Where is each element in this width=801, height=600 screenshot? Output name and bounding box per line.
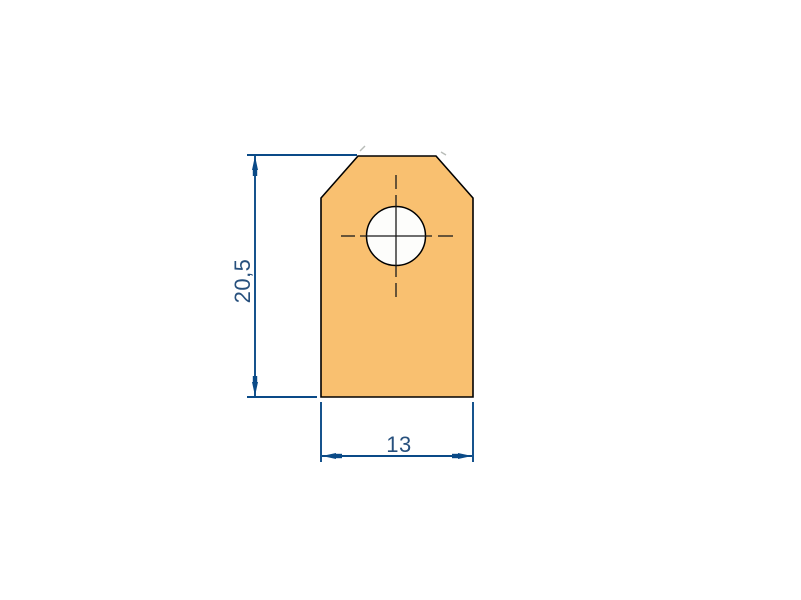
height-arrow-down-tail: [253, 376, 257, 382]
width-arrow-left-icon: [322, 453, 336, 459]
artifact-tick-left: [360, 146, 365, 151]
height-dimension-label: 20,5: [230, 259, 255, 304]
height-arrow-up-icon: [252, 156, 258, 170]
width-arrow-right-tail: [452, 454, 458, 458]
width-dimension: 13: [321, 402, 473, 462]
profile-shape: [321, 156, 473, 397]
technical-drawing-canvas: 20,5 13: [0, 0, 801, 600]
artifact-tick-right: [441, 152, 446, 155]
width-dimension-label: 13: [386, 432, 411, 457]
technical-drawing-page: 20,5 13: [0, 0, 801, 600]
corner-artifact-ticks: [360, 146, 446, 155]
width-arrow-left-tail: [336, 454, 342, 458]
height-arrow-down-icon: [252, 382, 258, 396]
height-arrow-up-tail: [253, 170, 257, 176]
width-arrow-right-icon: [458, 453, 472, 459]
